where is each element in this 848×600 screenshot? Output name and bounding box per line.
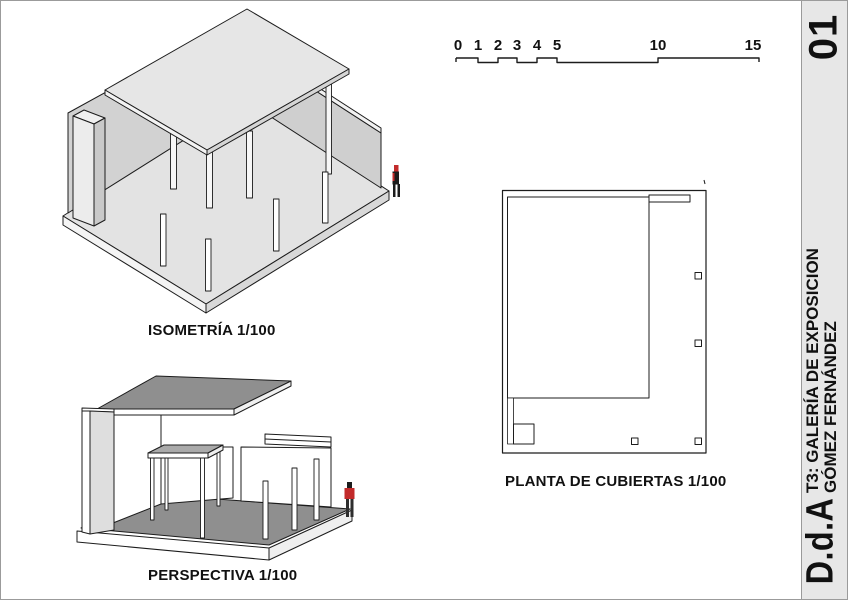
plan-tick-mark xyxy=(704,180,705,184)
sheet-number: 01 xyxy=(802,14,847,61)
scale-bar-line xyxy=(456,58,759,63)
perspective-view-label: PERSPECTIVA 1/100 xyxy=(148,567,297,584)
plan-top-beam xyxy=(649,195,690,202)
persp-roof-slab xyxy=(97,376,291,415)
persp-tall-pillar xyxy=(82,408,114,534)
project-title-block: T3: GALERÍA DE EXPOSICION GÓMEZ FERNÁNDE… xyxy=(804,225,840,493)
dda-logo: D.d.A xyxy=(800,498,843,584)
scale-tick-label: 3 xyxy=(513,37,521,54)
plan-left-wall-strip xyxy=(508,398,514,444)
scale-tick-label: 2 xyxy=(494,37,502,54)
scale-tick-label: 10 xyxy=(650,37,667,54)
scale-tick-label: 15 xyxy=(745,37,762,54)
iso-tall-pillar xyxy=(73,110,105,226)
plan-roof-outline xyxy=(508,197,650,398)
project-title: T3: GALERÍA DE EXPOSICION xyxy=(804,225,822,493)
roof-plan-drawing xyxy=(503,180,707,453)
perspective-view-drawing xyxy=(77,376,355,560)
isometric-view-drawing xyxy=(63,9,400,313)
roof-plan-view-label: PLANTA DE CUBIERTAS 1/100 xyxy=(505,473,726,490)
drawing-sheet: 0 1 2 3 4 5 10 15 ISOMETRÍA 1/100 PERSPE… xyxy=(0,0,848,600)
scale-tick-label: 5 xyxy=(553,37,561,54)
scale-tick-label: 4 xyxy=(533,37,541,54)
project-author: GÓMEZ FERNÁNDEZ xyxy=(822,225,840,493)
scale-tick-label: 1 xyxy=(474,37,482,54)
plan-pillar-square xyxy=(514,424,535,444)
scale-tick-label: 0 xyxy=(454,37,462,54)
architectural-drawings-canvas xyxy=(1,1,848,600)
iso-person-figure xyxy=(393,165,401,197)
isometric-view-label: ISOMETRÍA 1/100 xyxy=(148,322,275,339)
